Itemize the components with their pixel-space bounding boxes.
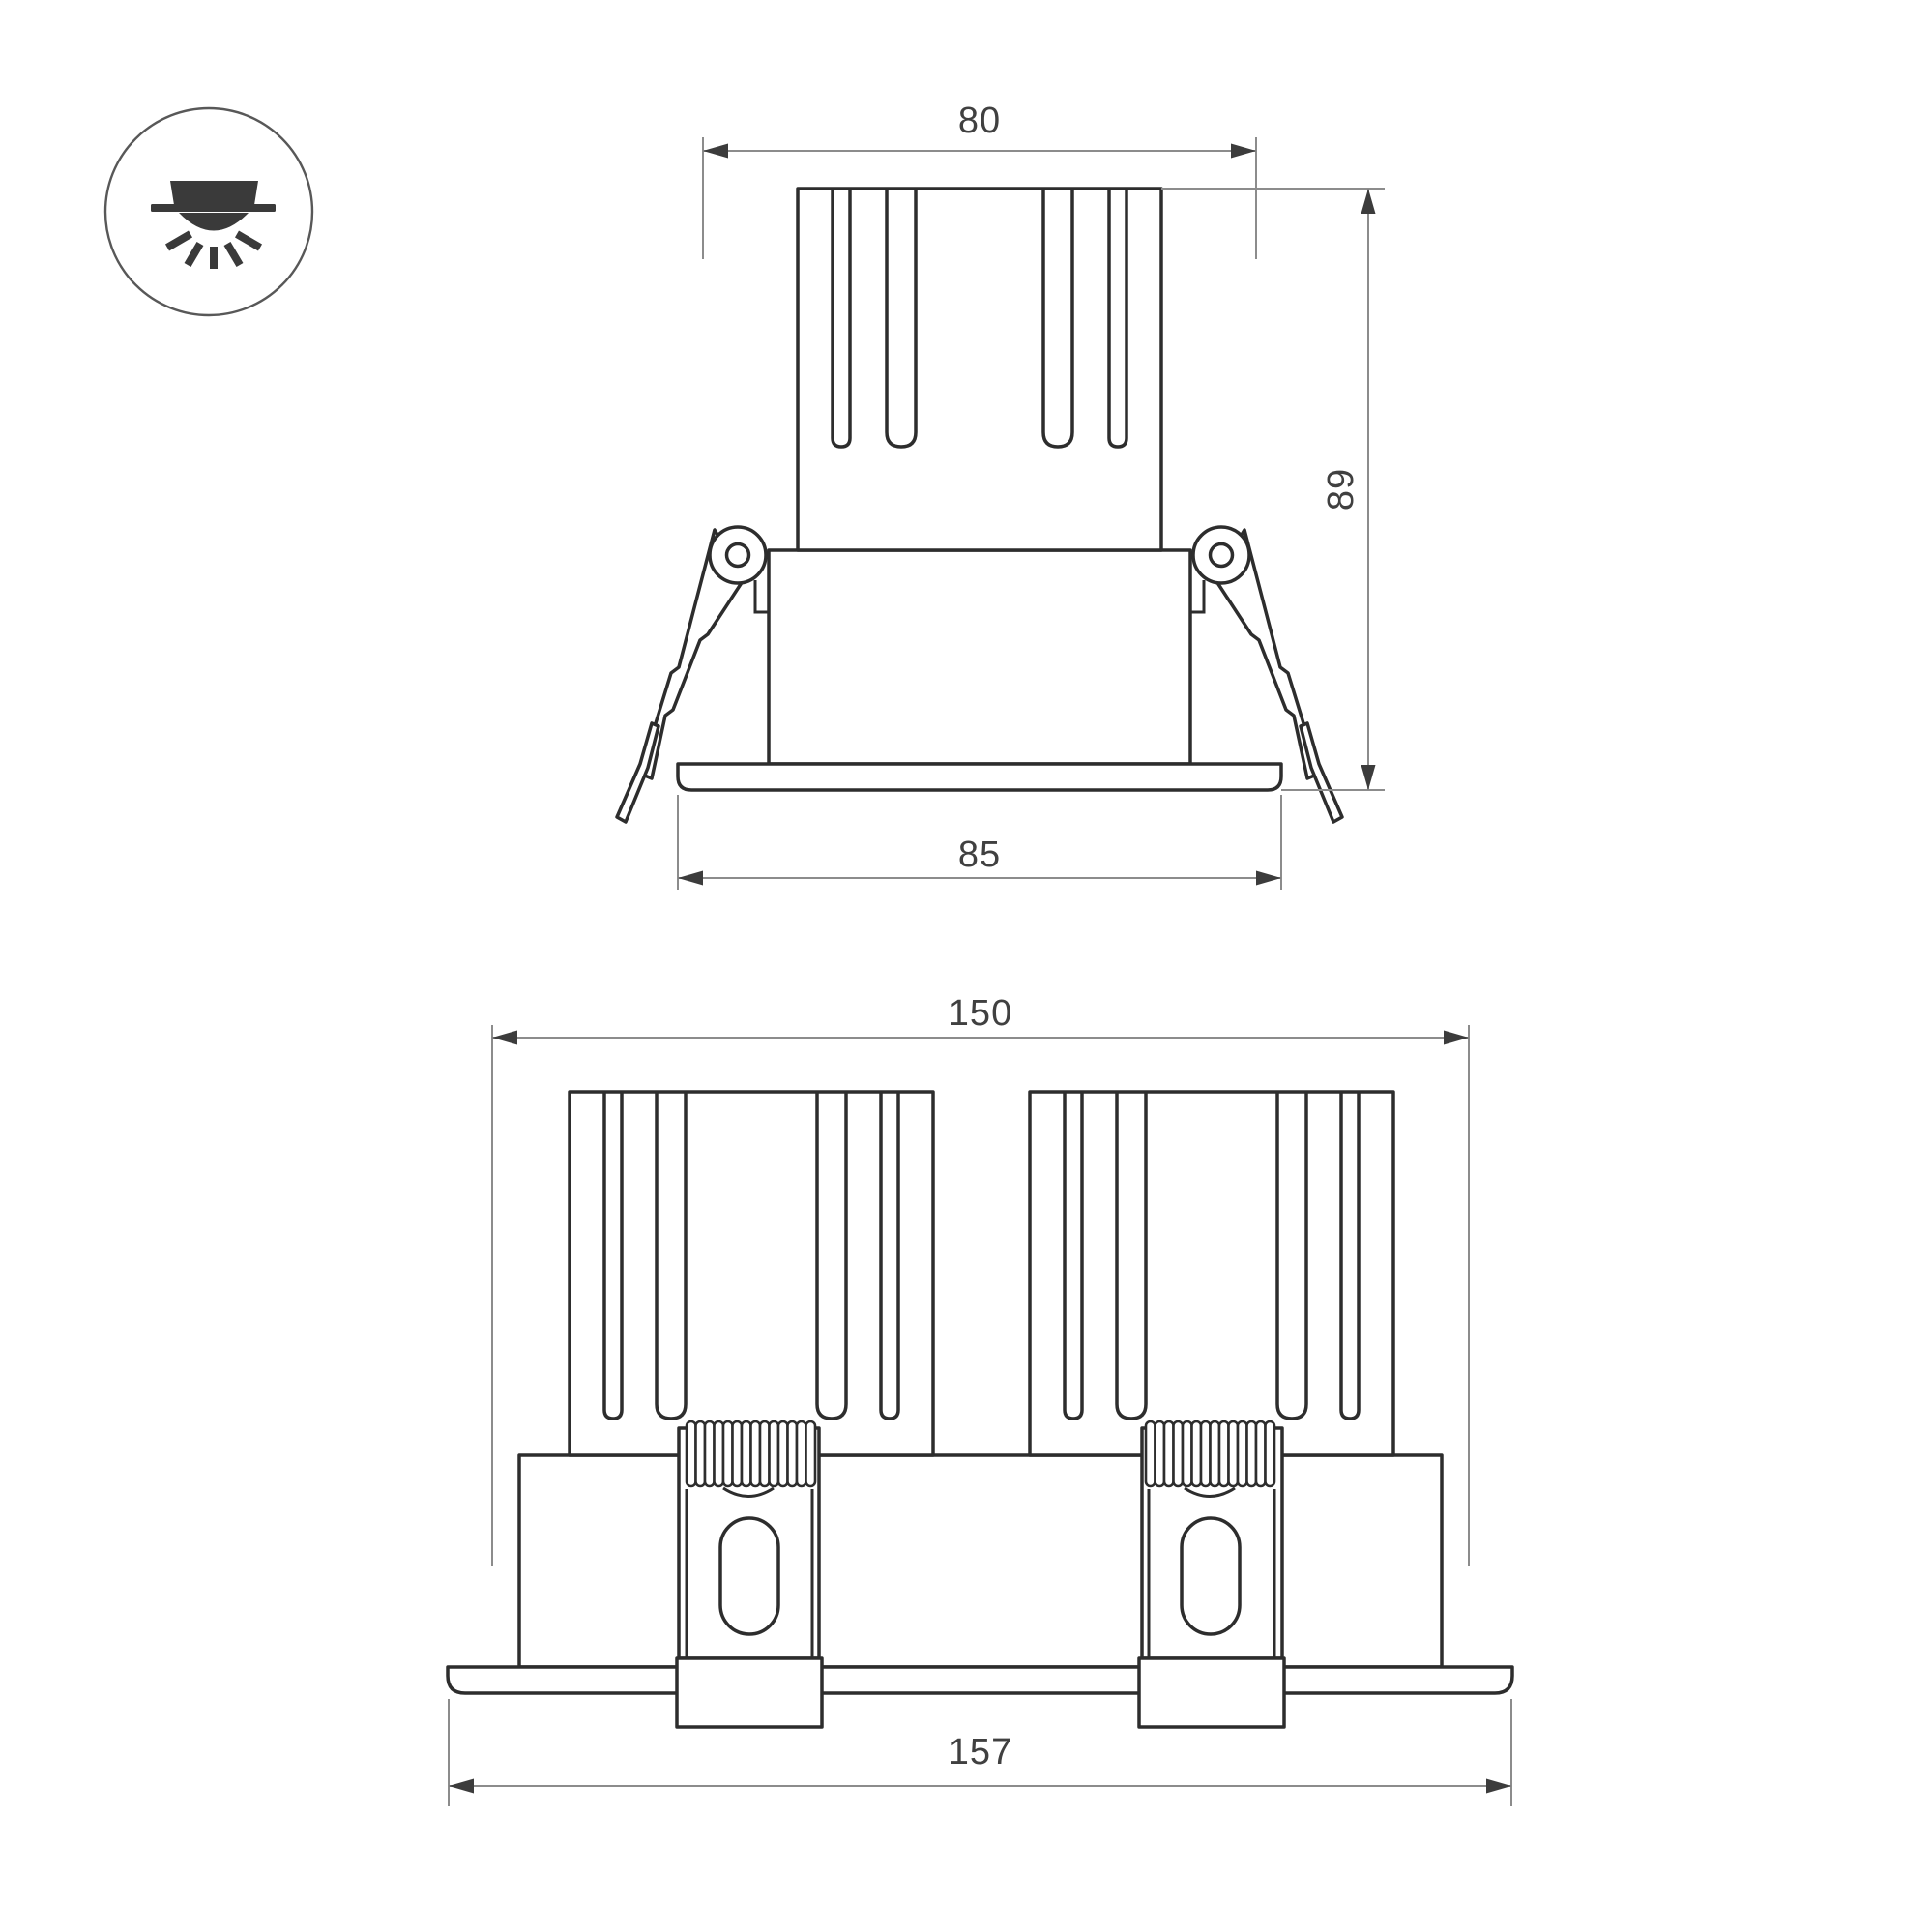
clamp-left xyxy=(677,1421,822,1727)
front-heatsink-right xyxy=(1030,1092,1393,1455)
front-view: 150 157 xyxy=(448,993,1512,1806)
clamp-right xyxy=(1139,1421,1284,1727)
product-drawing: 80 89 85 xyxy=(0,0,1932,1932)
dim-height-label: 89 xyxy=(1321,468,1361,511)
clip-pivot-hole xyxy=(727,544,749,567)
clamp-slot-hole xyxy=(720,1518,778,1634)
side-heatsink xyxy=(798,189,1161,550)
recessed-downlight-icon xyxy=(151,181,276,269)
dim-height: 89 xyxy=(1161,189,1385,790)
dim-flange-width-label: 85 xyxy=(958,834,1001,875)
dim-overall-width: 157 xyxy=(449,1699,1511,1806)
side-view: 80 89 85 xyxy=(617,101,1385,890)
clamp-foot xyxy=(677,1658,822,1727)
clamp-slot-hole xyxy=(1182,1518,1240,1634)
dim-top-width-label: 80 xyxy=(958,101,1001,141)
dim-body-width-label: 150 xyxy=(949,993,1012,1034)
clip-pivot-hole xyxy=(1211,544,1233,567)
clamp-foot xyxy=(1139,1658,1284,1727)
front-body xyxy=(519,1455,1442,1667)
dim-flange-width: 85 xyxy=(678,795,1281,890)
side-flange xyxy=(678,764,1281,790)
dim-overall-width-label: 157 xyxy=(949,1732,1012,1772)
front-heatsink-left xyxy=(570,1092,933,1455)
downlight-type-icon xyxy=(105,108,312,315)
side-body xyxy=(769,550,1190,764)
front-flange xyxy=(448,1667,1512,1693)
